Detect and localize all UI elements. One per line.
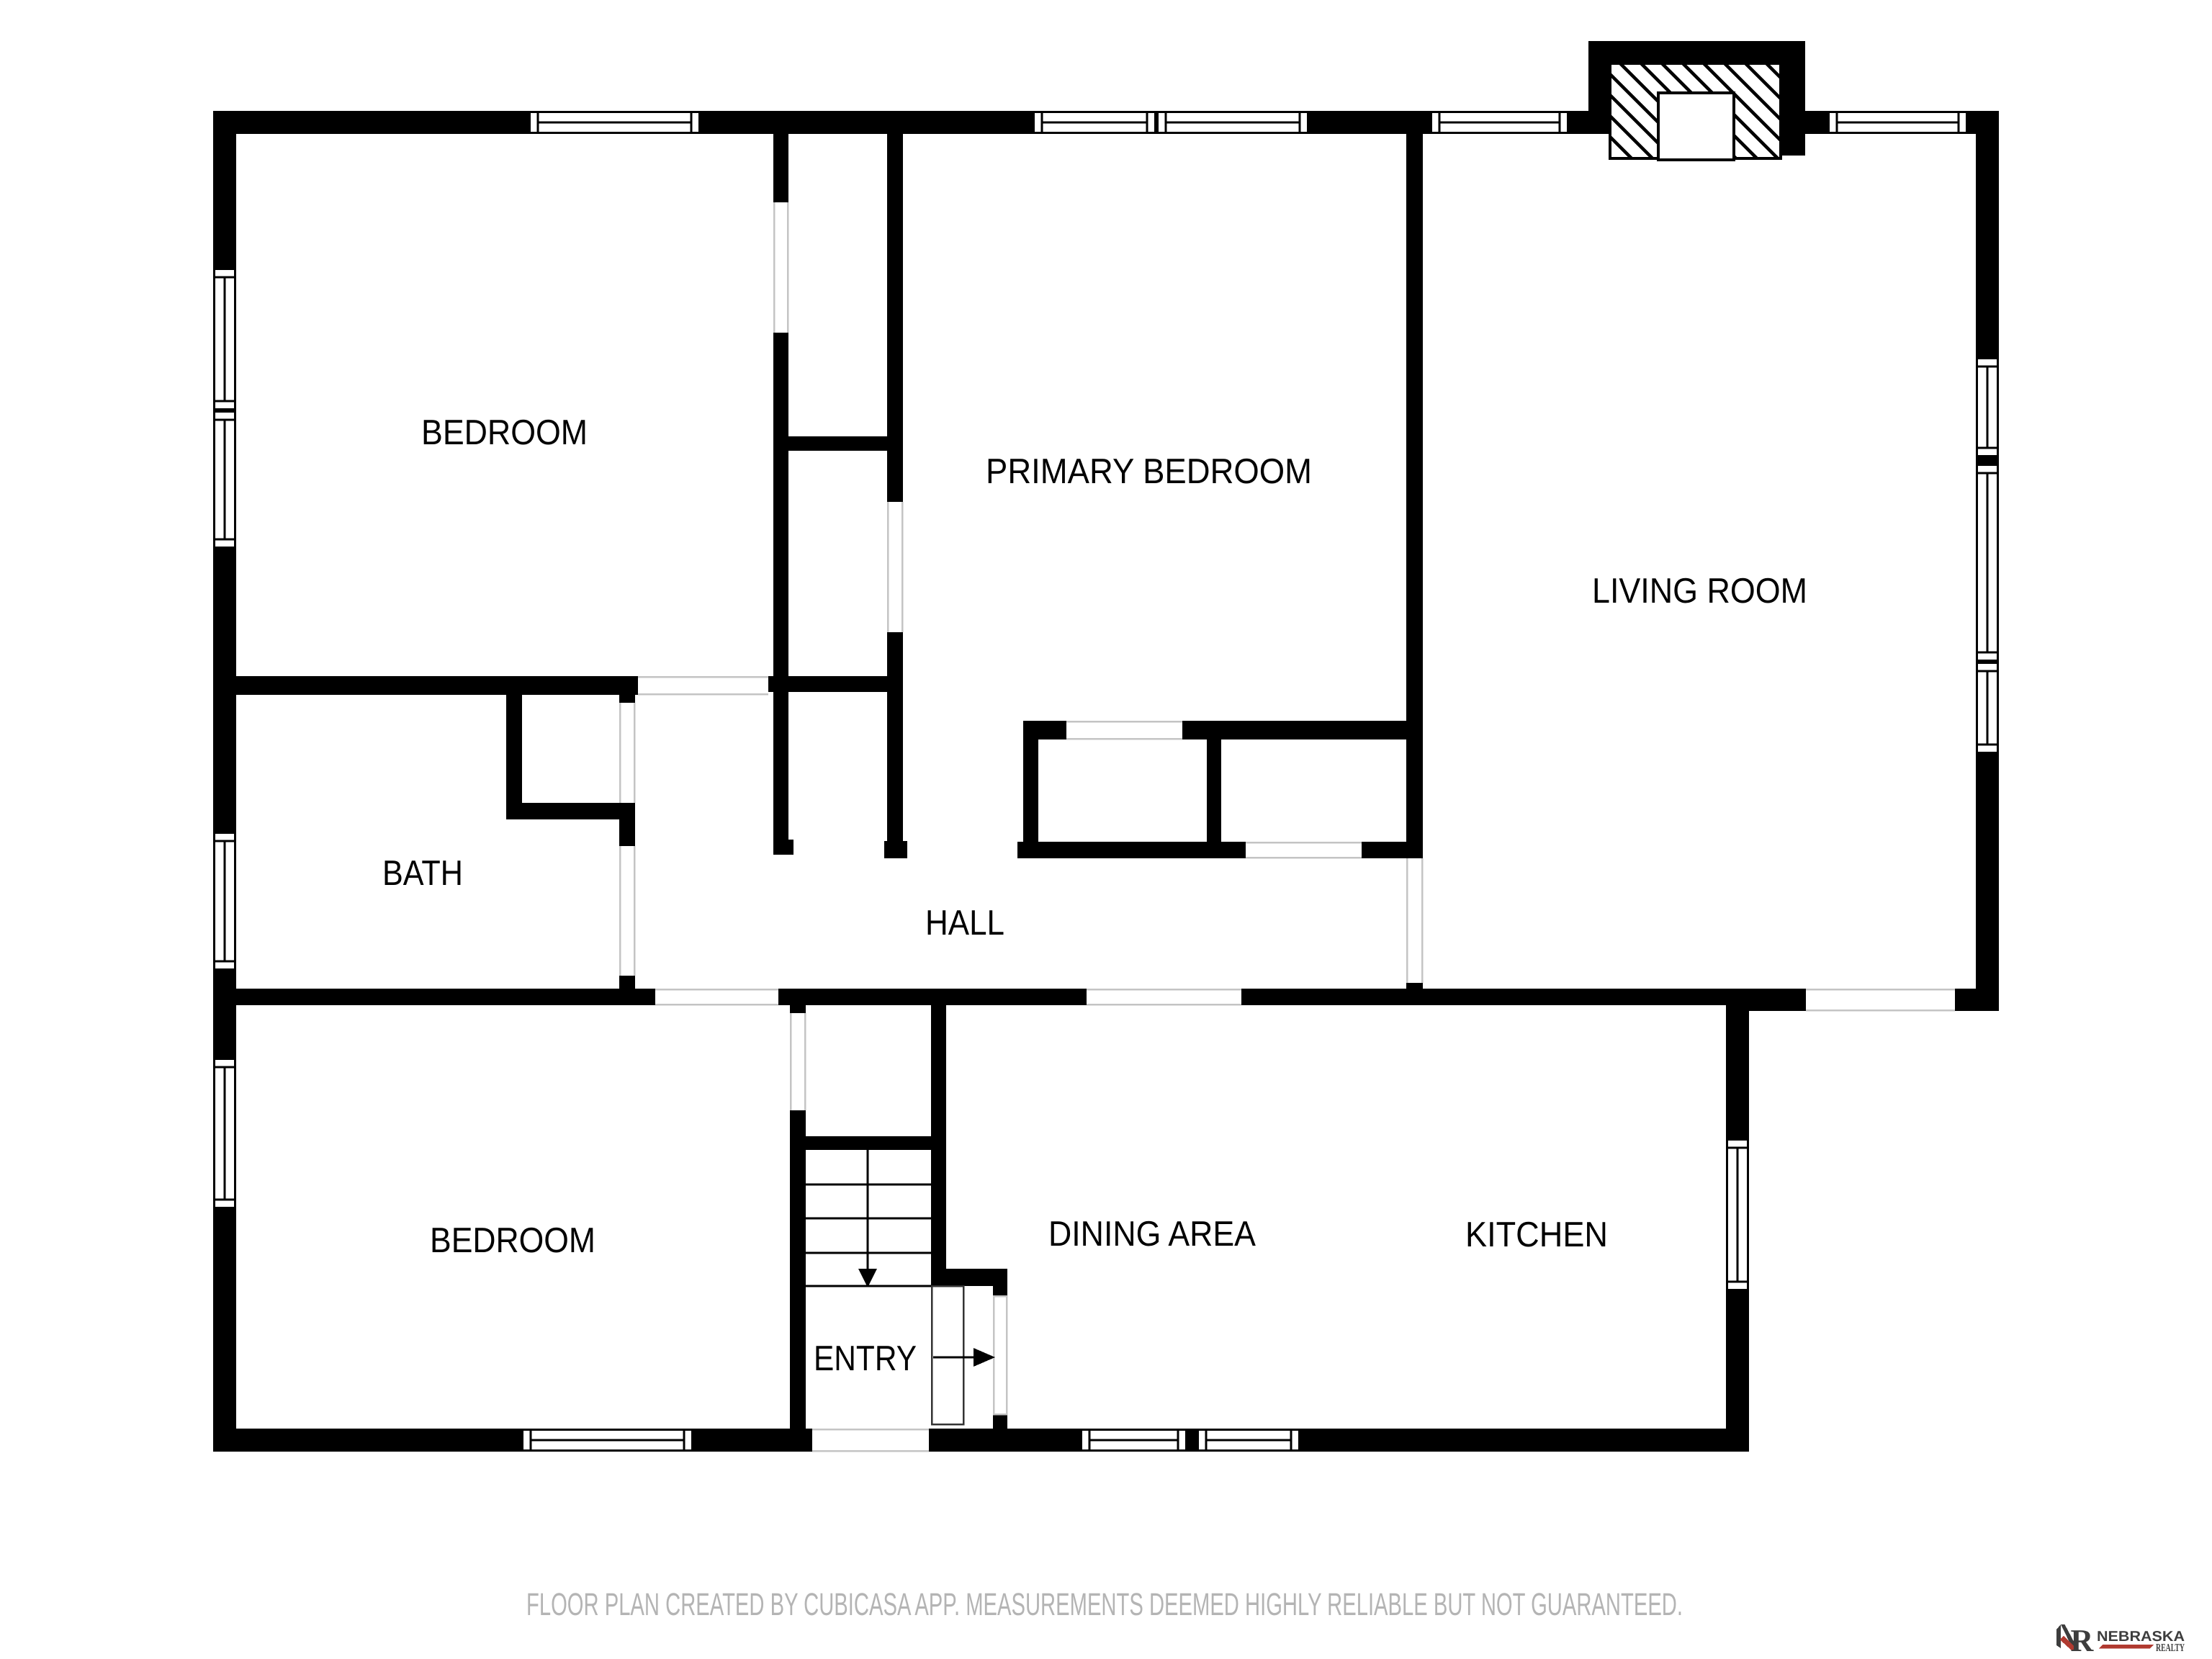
svg-text:PRIMARY BEDROOM: PRIMARY BEDROOM [986,452,1312,491]
svg-text:HALL: HALL [925,904,1004,943]
svg-text:LIVING ROOM: LIVING ROOM [1592,572,1807,611]
svg-text:KITCHEN: KITCHEN [1465,1215,1608,1254]
svg-text:DINING AREA: DINING AREA [1048,1215,1256,1254]
svg-text:BEDROOM: BEDROOM [421,413,588,452]
svg-text:BATH: BATH [382,854,463,893]
svg-text:FLOOR PLAN CREATED BY CUBICASA: FLOOR PLAN CREATED BY CUBICASA APP. MEAS… [526,1587,1683,1622]
svg-text:R: R [2071,1623,2095,1658]
svg-text:BEDROOM: BEDROOM [430,1221,595,1260]
svg-text:ENTRY: ENTRY [814,1339,917,1378]
svg-text:REALTY: REALTY [2156,1642,2185,1654]
